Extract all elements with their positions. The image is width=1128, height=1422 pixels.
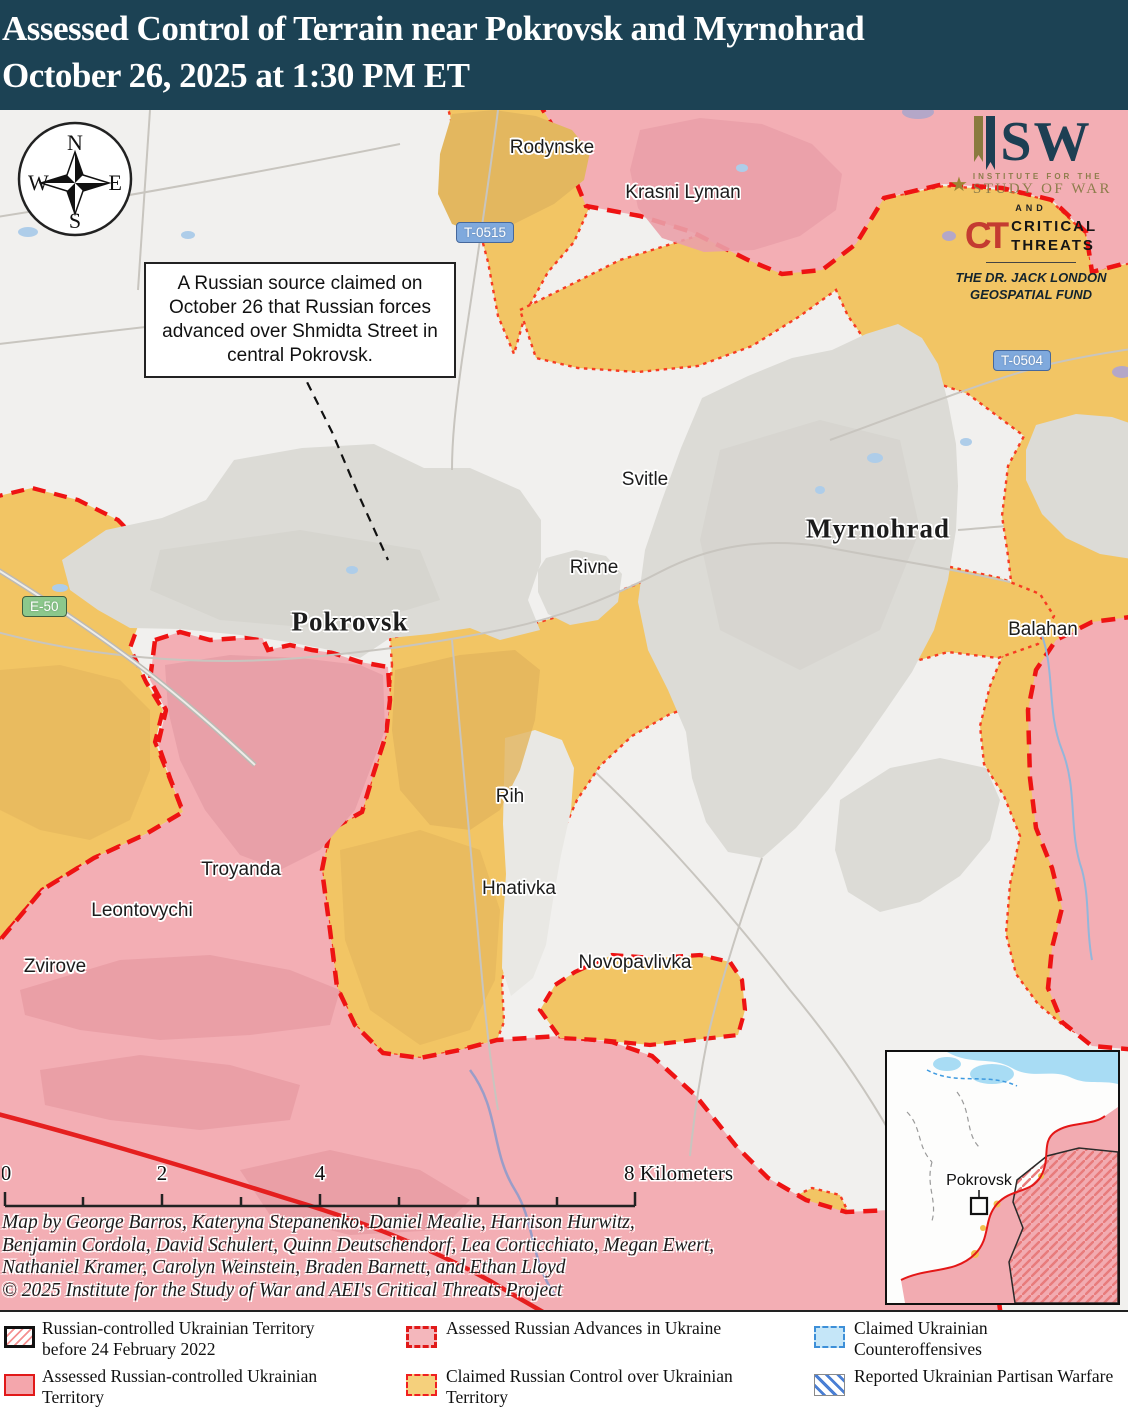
legend-label-pre2022: Russian-controlled Ukrainian Territory b…	[42, 1318, 362, 1360]
compass-north-label: N	[67, 130, 83, 155]
map-label-leontovychi: Leontovychi	[91, 900, 192, 922]
ct-monogram: CT	[965, 219, 1004, 253]
map-label-rih: Rih	[496, 786, 525, 808]
legend-label-advances: Assessed Russian Advances in Ukraine	[446, 1318, 746, 1339]
scale-tick-2: 2	[157, 1161, 168, 1185]
map-label-troyanda: Troyanda	[201, 859, 281, 881]
isw-institute-row: ★ INSTITUTE FOR THE STUDY OF WAR	[942, 172, 1120, 198]
map-label-pokrovsk: Pokrovsk	[291, 607, 408, 638]
legend-label-counteroffensives: Claimed Ukrainian Counteroffensives	[854, 1318, 1104, 1360]
credits-line1: Map by George Barros, Kateryna Stepanenk…	[2, 1212, 882, 1235]
star-icon: ★	[950, 175, 968, 195]
legend-label-claimed-control: Claimed Russian Control over Ukrainian T…	[446, 1366, 746, 1408]
map-label-myrnohrad: Myrnohrad	[806, 514, 950, 545]
map-legend: Russian-controlled Ukrainian Territory b…	[0, 1310, 1128, 1422]
ct-line1: CRITICAL	[1011, 217, 1097, 236]
legend-swatch-assessed-control	[4, 1374, 35, 1396]
isw-ribbon-icon	[970, 114, 998, 170]
credits-line2: Benjamin Cordola, David Schulert, Quinn …	[2, 1235, 882, 1258]
map-label-hnativka: Hnativka	[482, 878, 556, 900]
and-label: AND	[942, 203, 1120, 213]
legend-label-partisan: Reported Ukrainian Partisan Warfare	[854, 1366, 1128, 1387]
scale-tick-4: 4	[315, 1161, 326, 1185]
scale-tick-0: 0	[2, 1161, 11, 1185]
compass-south-label: S	[69, 208, 81, 233]
map-credits: Map by George Barros, Kateryna Stepanenk…	[2, 1212, 882, 1302]
isw-acronym: SW	[1000, 114, 1091, 170]
isw-map-page: Assessed Control of Terrain near Pokrovs…	[0, 0, 1128, 1422]
scale-bar-line	[5, 1192, 635, 1206]
legend-label-assessed-control: Assessed Russian-controlled Ukrainian Te…	[42, 1366, 342, 1408]
legend-swatch-advances	[406, 1326, 437, 1348]
map-label-krasni-lyman: Krasni Lyman	[625, 182, 740, 204]
institute-line1: INSTITUTE FOR THE	[973, 172, 1112, 181]
credits-line4: © 2025 Institute for the Study of War an…	[2, 1280, 882, 1303]
map-canvas: N S W E A Russian source claimed on Octo…	[0, 110, 1128, 1310]
legend-swatch-counteroffensives	[814, 1326, 845, 1348]
isw-logo: SW	[942, 114, 1120, 170]
logo-divider	[986, 262, 1076, 263]
compass-rose: N S W E	[16, 120, 134, 238]
map-label-balahan: Balahan	[1008, 619, 1078, 641]
inset-pokrovsk-label: Pokrovsk	[946, 1172, 1013, 1189]
scale-bar: 0 2 4 8 Kilometers	[2, 1158, 762, 1210]
ct-line2: THREATS	[1011, 236, 1097, 255]
legend-swatch-partisan	[814, 1374, 845, 1396]
compass-west-label: W	[28, 170, 49, 195]
institute-line2: STUDY OF WAR	[973, 181, 1112, 198]
scale-tick-8: 8 Kilometers	[624, 1161, 733, 1185]
geospatial-fund-label: THE DR. JACK LONDON GEOSPATIAL FUND	[942, 269, 1120, 303]
logo-block: SW ★ INSTITUTE FOR THE STUDY OF WAR AND …	[942, 114, 1120, 303]
road-badge-t0515: T-0515	[456, 222, 514, 243]
map-title-line2: October 26, 2025 at 1:30 PM ET	[2, 52, 1124, 100]
map-label-rivne: Rivne	[570, 557, 619, 579]
inset-locator-map: Pokrovsk	[885, 1050, 1120, 1305]
critical-threats-logo: CT CRITICAL THREATS	[942, 217, 1120, 255]
map-label-rodynske: Rodynske	[510, 137, 595, 159]
inset-graphics: Pokrovsk	[887, 1052, 1118, 1303]
urban-west-pokrovsk-tinted	[0, 665, 150, 840]
legend-swatch-pre2022	[4, 1326, 35, 1348]
map-label-novopavlivka: Novopavlivka	[579, 952, 692, 974]
map-label-svitle: Svitle	[622, 469, 668, 491]
credits-line3: Nathaniel Kramer, Carolyn Weinstein, Bra…	[2, 1257, 882, 1280]
road-badge-e50: E-50	[22, 596, 67, 617]
legend-swatch-claimed-control	[406, 1374, 437, 1396]
annotation-callout: A Russian source claimed on October 26 t…	[144, 262, 456, 378]
compass-east-label: E	[109, 170, 122, 195]
map-title-bar: Assessed Control of Terrain near Pokrovs…	[0, 0, 1128, 110]
map-label-zvirove: Zvirove	[24, 956, 86, 978]
road-badge-t0504: T-0504	[993, 350, 1051, 371]
map-title-line1: Assessed Control of Terrain near Pokrovs…	[2, 6, 1124, 52]
